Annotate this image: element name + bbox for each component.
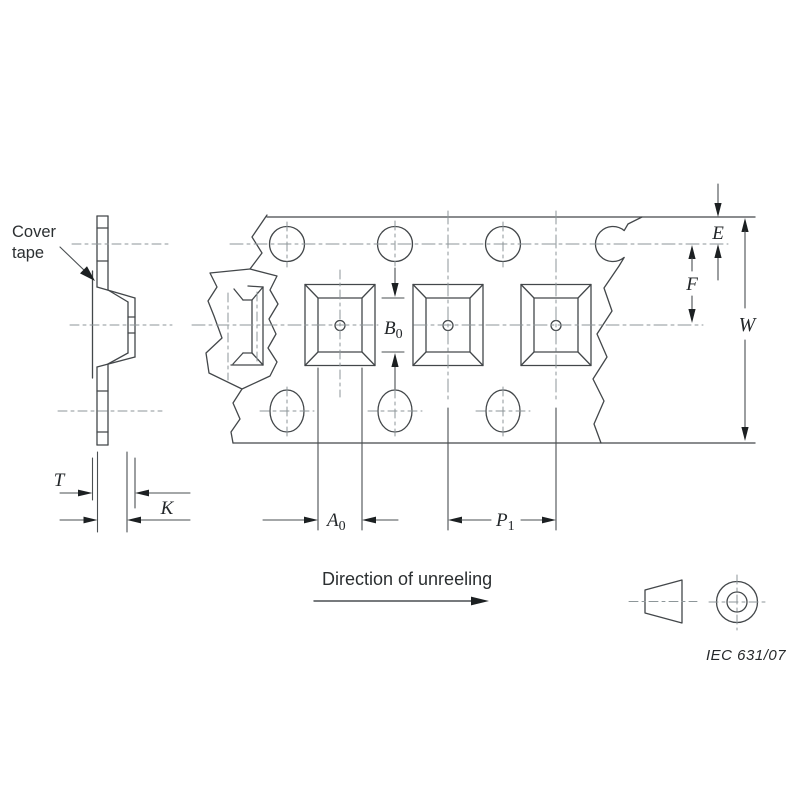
dimension-B0: B0 bbox=[382, 268, 404, 389]
dim-label-K: K bbox=[160, 498, 175, 519]
dimension-T-K: T K bbox=[54, 452, 190, 532]
torn-pocket-fragment bbox=[228, 286, 263, 380]
figure-reference: IEC 631/07 bbox=[706, 647, 786, 664]
cover-tape-label-line2: tape bbox=[12, 244, 44, 262]
dimension-A0: A0 bbox=[263, 368, 398, 534]
dimension-W: W bbox=[739, 218, 758, 441]
top-view-tape bbox=[192, 211, 755, 443]
dim-label-A0: A0 bbox=[325, 510, 346, 534]
direction-label: Direction of unreeling bbox=[322, 569, 492, 589]
cover-tape-callout: Cover tape bbox=[12, 223, 95, 281]
carrier-tape-diagram: T K Cover tape bbox=[0, 0, 800, 800]
component-symbol bbox=[629, 575, 766, 630]
side-view-section bbox=[58, 216, 172, 445]
dimension-P1: P1 bbox=[448, 408, 556, 534]
dim-label-F: F bbox=[685, 274, 698, 295]
dimension-F: F bbox=[685, 245, 698, 323]
dim-label-T: T bbox=[54, 470, 66, 491]
cover-tape-label-line1: Cover bbox=[12, 223, 57, 241]
dim-label-W: W bbox=[739, 314, 758, 336]
dim-label-B0: B0 bbox=[384, 318, 403, 342]
torn-edge-right bbox=[593, 217, 642, 443]
centerlines bbox=[192, 211, 728, 436]
direction-arrow-icon bbox=[471, 597, 489, 606]
direction-of-unreeling: Direction of unreeling bbox=[314, 569, 492, 605]
dimension-E: E bbox=[711, 184, 724, 280]
iec-carrier-tape-figure: T K Cover tape bbox=[0, 0, 800, 800]
dim-label-P1: P1 bbox=[495, 510, 515, 534]
dim-label-E: E bbox=[711, 223, 724, 244]
